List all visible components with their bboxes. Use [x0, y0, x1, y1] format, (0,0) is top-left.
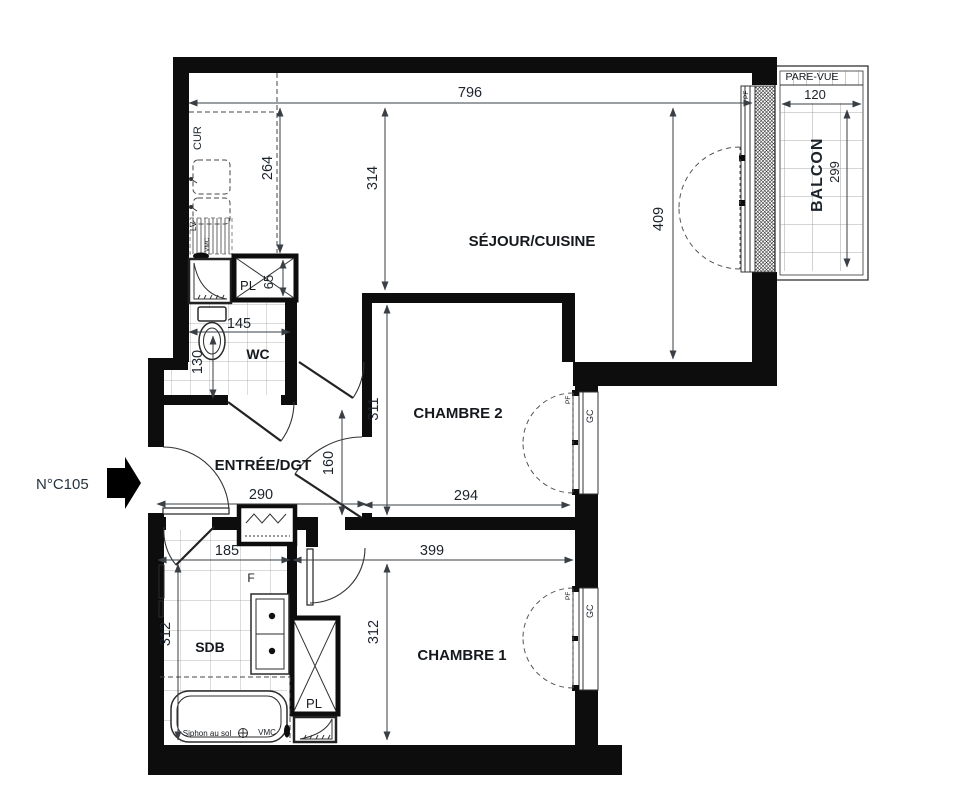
wall-left-upper [173, 57, 189, 362]
wall-chambre2-top [362, 293, 575, 303]
closet-top-label: PL [240, 278, 256, 293]
balcony-french-door: PF [679, 86, 775, 272]
dim-311: 311 [366, 397, 382, 420]
radiator-box [239, 506, 295, 544]
chambre1-door [307, 548, 365, 605]
wall-right-mid [752, 272, 777, 364]
kitchen-counter-label: CUR [192, 126, 204, 150]
wall-chambres-right-b [575, 493, 598, 588]
siphon-label: Siphon au sol [183, 729, 232, 738]
kitchen-vmc-label: VMC [204, 237, 211, 252]
dim-796: 796 [458, 85, 482, 101]
wall-chambre2-right-upper [562, 295, 575, 362]
entry-arrow-icon [107, 457, 141, 509]
dim-130: 130 [190, 350, 206, 374]
dim-balcon-width: 120 [804, 87, 826, 102]
dim-185: 185 [215, 543, 239, 559]
chambre1-label: CHAMBRE 1 [417, 647, 506, 664]
wall-sdb-top-a [148, 517, 166, 530]
wall-chambres-right-c [575, 688, 598, 745]
balcony: PARE-VUE 120 299 BALCON [775, 66, 868, 280]
floor-plan-page: PARE-VUE 120 299 BALCON [0, 0, 966, 800]
chambre1-window-gc-label: GC [585, 604, 595, 618]
chambre1-window: GC PF [523, 586, 598, 691]
balcony-door-frame [741, 86, 755, 272]
dim-314: 314 [365, 166, 381, 190]
dim-290: 290 [249, 487, 273, 503]
dim-160: 160 [321, 451, 337, 475]
sdb-label: SDB [195, 639, 225, 655]
bath-vmc-outlet [284, 725, 290, 738]
toilet-tank [198, 307, 226, 321]
dishwasher-label: LV [189, 221, 198, 231]
balcon-label: BALCON [809, 138, 826, 212]
dim-294: 294 [454, 488, 478, 504]
closet-bottom-label: PL [306, 696, 322, 711]
sejour-label: SÉJOUR/CUISINE [469, 233, 596, 250]
dim-145: 145 [227, 316, 251, 332]
wall-wc-right [285, 300, 297, 400]
wc-door [228, 402, 294, 441]
balcony-door-pf-label: PF [743, 91, 750, 99]
dim-409: 409 [651, 207, 667, 231]
sink-drain-icon [269, 648, 275, 654]
window-pf-label: PF [565, 592, 572, 600]
dim-264: 264 [260, 156, 276, 180]
dim-balcon-depth: 299 [827, 161, 842, 183]
dim-pl-depth: 65 [261, 275, 276, 289]
floor-plan-drawing: PARE-VUE 120 299 BALCON [0, 0, 966, 800]
chambre1-door-leaf [307, 549, 313, 605]
chambre2-door [295, 437, 362, 518]
chambre2-label: CHAMBRE 2 [413, 405, 502, 422]
sink-drain-icon [269, 613, 275, 619]
entree-label: ENTRÉE/DGT [215, 457, 312, 474]
dim-312-ch1: 312 [366, 620, 382, 644]
unit-number-label: N°C105 [36, 476, 89, 493]
wall-wc-bottom-stub [281, 395, 297, 405]
dim-312-sdb: 312 [158, 622, 174, 646]
chambre2-window: GC PF [523, 390, 598, 495]
chambre2-window-gc-label: GC [585, 409, 595, 423]
f-label: F [247, 571, 254, 585]
wall-top [173, 57, 777, 73]
entry-marker: N°C105 [36, 457, 141, 509]
wall-chambre1-door-post [306, 517, 318, 547]
wall-chambre2-bottom [345, 517, 575, 530]
sejour-door [299, 362, 364, 398]
entry-door-leaf [163, 508, 229, 514]
wall-bottom [148, 745, 622, 775]
wall-sdb-top-b [212, 517, 237, 530]
wall-right-upper [752, 57, 777, 85]
wc-label: WC [246, 346, 269, 362]
kitchen-sink-1 [193, 160, 230, 194]
bath-vmc-label: VMC [258, 728, 276, 737]
dim-399: 399 [420, 543, 444, 559]
wall-wc-bottom [148, 395, 228, 405]
wall-sejour-south [573, 362, 777, 386]
window-pf-label: PF [565, 396, 572, 404]
balcony-door-shutter [755, 86, 775, 272]
windows: PF GC PF GC PF [523, 86, 775, 691]
pare-vue-label: PARE-VUE [786, 71, 839, 83]
